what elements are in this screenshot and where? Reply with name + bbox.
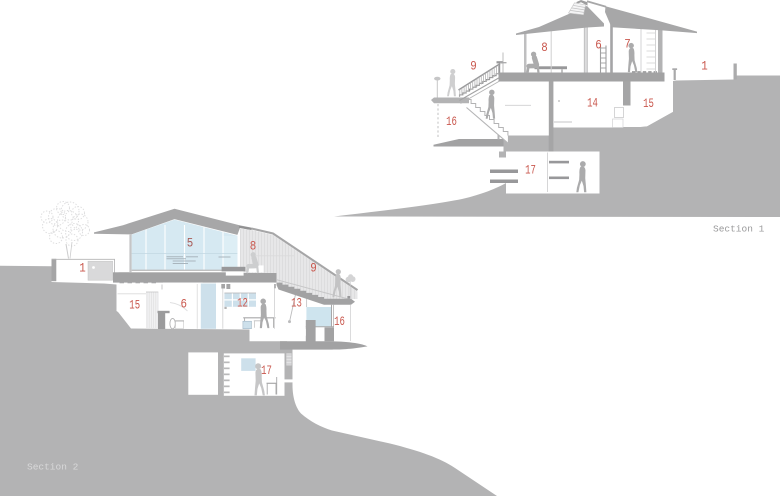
svg-text:6: 6 bbox=[181, 297, 188, 312]
svg-text:8: 8 bbox=[541, 40, 548, 55]
svg-text:13: 13 bbox=[291, 296, 302, 311]
svg-text:16: 16 bbox=[446, 114, 457, 129]
svg-text:1: 1 bbox=[79, 261, 86, 276]
svg-text:14: 14 bbox=[587, 95, 598, 110]
svg-text:15: 15 bbox=[129, 297, 140, 312]
svg-text:5: 5 bbox=[187, 236, 194, 251]
svg-text:12: 12 bbox=[237, 296, 248, 311]
svg-text:15: 15 bbox=[643, 96, 654, 111]
svg-text:6: 6 bbox=[595, 38, 602, 53]
svg-text:Section 2: Section 2 bbox=[27, 462, 79, 473]
svg-text:16: 16 bbox=[334, 314, 345, 329]
svg-text:17: 17 bbox=[261, 363, 272, 378]
svg-text:8: 8 bbox=[250, 239, 257, 254]
svg-text:17: 17 bbox=[525, 163, 536, 178]
svg-text:7: 7 bbox=[624, 37, 631, 52]
svg-text:1: 1 bbox=[701, 59, 708, 74]
svg-text:9: 9 bbox=[470, 59, 477, 74]
svg-text:Section 1: Section 1 bbox=[713, 224, 765, 235]
svg-text:9: 9 bbox=[310, 261, 317, 276]
